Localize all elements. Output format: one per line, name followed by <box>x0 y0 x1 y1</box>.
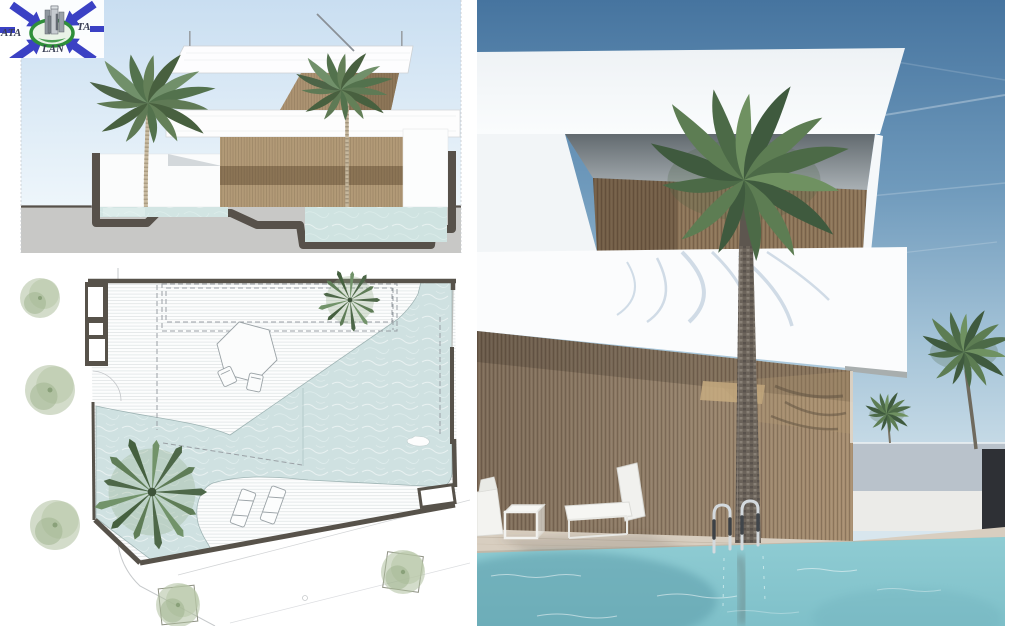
logo-text-right: TA <box>77 21 90 33</box>
logo-text-left: ATA <box>0 27 21 39</box>
street-trees <box>20 278 80 550</box>
architectural-presentation-board: ATA TA LAN <box>0 0 1024 626</box>
wall-niches <box>85 282 108 366</box>
dark-corner-wall <box>982 449 1005 531</box>
site-plan-panel <box>0 268 470 626</box>
logo-text-bottom: LAN <box>41 43 65 55</box>
company-logo: ATA TA LAN <box>0 0 104 58</box>
manhole <box>303 596 308 601</box>
roof-post <box>401 31 403 46</box>
roof-post <box>189 31 191 46</box>
right-pier <box>403 129 448 207</box>
planter-boxes <box>156 550 425 626</box>
entrance-gate <box>419 485 455 508</box>
exterior-render-panel <box>477 0 1005 626</box>
ground-floor-timber-wall <box>220 137 403 207</box>
